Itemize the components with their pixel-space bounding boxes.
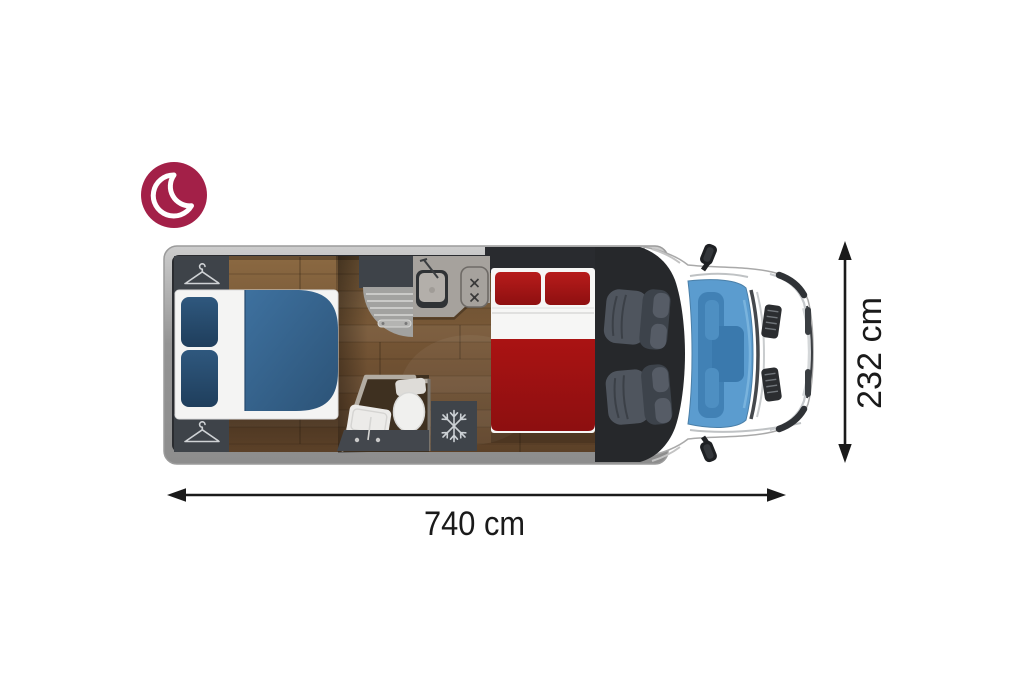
- svg-text:232 cm: 232 cm: [851, 297, 889, 409]
- svg-text:740 cm: 740 cm: [424, 505, 525, 543]
